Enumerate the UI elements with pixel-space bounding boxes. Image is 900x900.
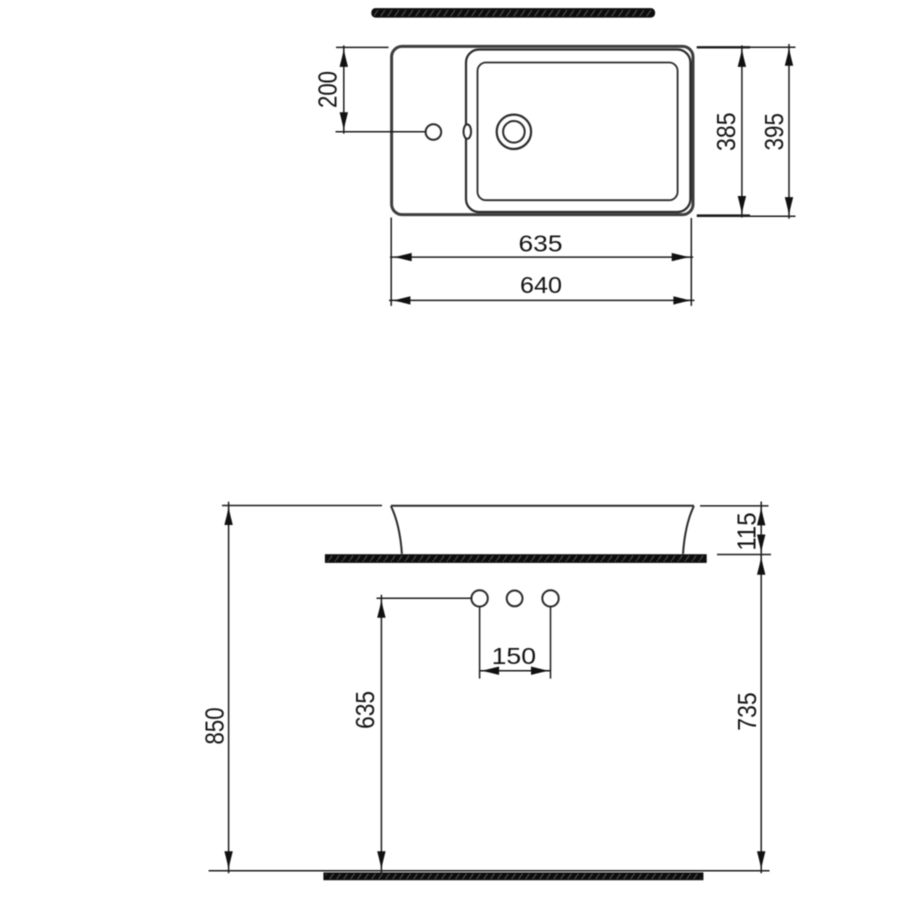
svg-text:850: 850 [200, 707, 230, 744]
svg-text:395: 395 [759, 113, 789, 151]
svg-text:150: 150 [492, 643, 536, 669]
svg-text:385: 385 [711, 112, 741, 151]
svg-text:635: 635 [519, 231, 563, 257]
svg-text:200: 200 [313, 71, 343, 108]
svg-text:635: 635 [350, 691, 380, 729]
svg-text:115: 115 [731, 512, 761, 550]
svg-text:640: 640 [520, 272, 562, 298]
svg-text:735: 735 [732, 692, 762, 730]
